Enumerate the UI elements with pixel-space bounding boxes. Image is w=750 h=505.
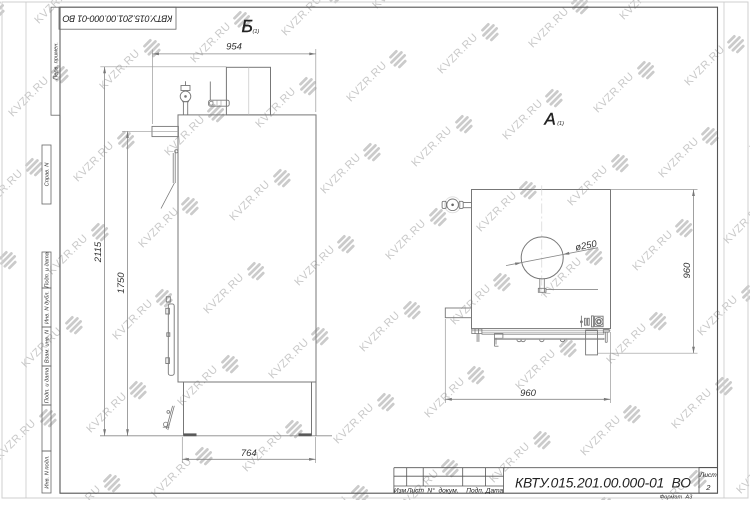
svg-text:1750: 1750: [116, 272, 127, 294]
svg-text:2: 2: [705, 483, 711, 492]
svg-text:А: А: [544, 109, 556, 128]
svg-text:Инв. N дубл.: Инв. N дубл.: [45, 291, 51, 324]
svg-text:960: 960: [520, 388, 537, 399]
svg-text:Лист: Лист: [406, 487, 424, 494]
svg-text:954: 954: [226, 42, 242, 53]
svg-text:Б: Б: [242, 16, 253, 36]
svg-text:Инв. N подл.: Инв. N подл.: [45, 455, 51, 488]
svg-text:Перв. примен.: Перв. примен.: [54, 42, 60, 80]
svg-text:(1): (1): [253, 29, 260, 35]
svg-text:Дата: Дата: [485, 487, 504, 494]
svg-text:КВТУ.015.201.00.000-01 ВО: КВТУ.015.201.00.000-01 ВО: [515, 475, 691, 490]
svg-text:Взам. инв. N: Взам. инв. N: [45, 329, 51, 363]
svg-text:Подп.: Подп.: [466, 486, 484, 494]
svg-text:2115: 2115: [93, 241, 104, 263]
svg-text:Формат А3: Формат А3: [660, 494, 694, 500]
svg-text:Подп. и дата: Подп. и дата: [45, 252, 51, 288]
svg-text:960: 960: [682, 262, 693, 279]
svg-text:КВТУ.015.201.00.000-01 ВО: КВТУ.015.201.00.000-01 ВО: [63, 13, 173, 23]
svg-text:764: 764: [241, 448, 257, 459]
svg-text:Изм: Изм: [394, 487, 407, 494]
svg-text:(1): (1): [557, 121, 564, 127]
svg-text:N° докум.: N° докум.: [427, 486, 458, 494]
svg-text:Лист: Лист: [699, 472, 717, 479]
svg-text:Справ. N: Справ. N: [45, 162, 51, 187]
svg-text:Подп. и дата: Подп. и дата: [45, 368, 51, 404]
